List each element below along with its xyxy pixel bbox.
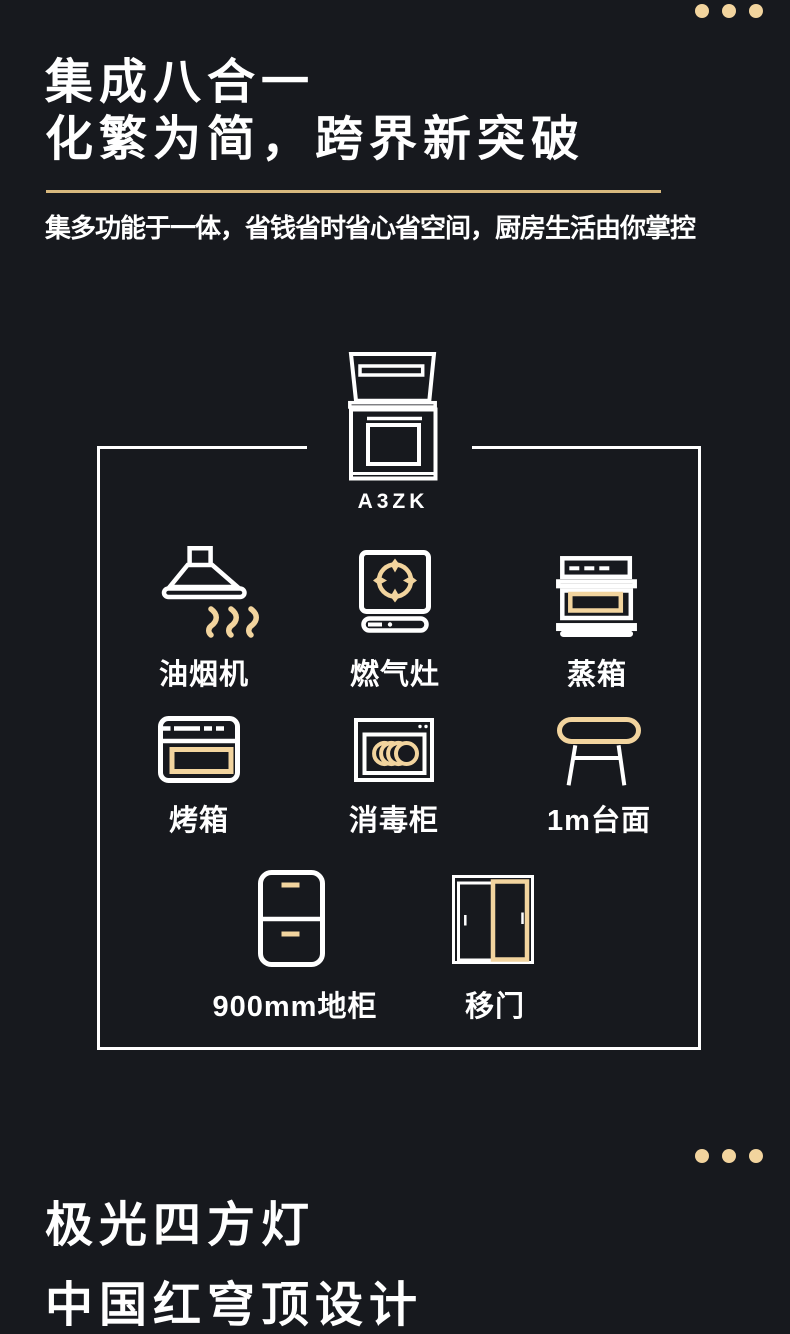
section-title-line2: 化繁为简，跨界新突破 — [45, 111, 585, 168]
item-label-gas-stove: 燃气灶 — [350, 651, 440, 693]
decoration-dots-bottom — [695, 1149, 763, 1163]
dot-icon — [749, 1149, 763, 1163]
item-label-countertop: 1m台面 — [547, 797, 651, 839]
steam-oven-icon — [556, 556, 637, 637]
item-label-steam-oven: 蒸箱 — [567, 651, 627, 693]
dot-icon — [695, 4, 709, 18]
item-label-disinfection-cabinet: 消毒柜 — [349, 797, 439, 839]
integrated-stove-icon — [349, 352, 437, 483]
item-label-base-cabinet: 900mm地柜 — [213, 983, 378, 1025]
gas-stove-icon — [359, 550, 431, 631]
section-title: 集成八合一 化繁为简，跨界新突破 — [45, 54, 585, 168]
base-cabinet-icon — [258, 870, 325, 967]
section-subtitle: 集多功能于一体，省钱省时省心省空间，厨房生活由你掌控 — [45, 208, 695, 245]
dot-icon — [722, 4, 736, 18]
model-label: A3ZK — [349, 490, 437, 514]
next-section-title-line2: 中国红穹顶设计 — [45, 1277, 423, 1334]
decoration-dots-top — [695, 4, 763, 18]
dot-icon — [749, 4, 763, 18]
section-title-line1: 集成八合一 — [45, 54, 585, 111]
sliding-door-icon — [452, 875, 534, 964]
dot-icon — [695, 1149, 709, 1163]
disinfection-cabinet-icon — [354, 718, 434, 782]
oven-icon — [158, 716, 240, 783]
countertop-icon — [557, 717, 641, 786]
item-label-range-hood: 油烟机 — [159, 651, 249, 693]
item-label-oven: 烤箱 — [169, 797, 229, 839]
next-section-title-line1: 极光四方灯 — [45, 1197, 315, 1254]
gold-divider — [46, 190, 661, 193]
dot-icon — [722, 1149, 736, 1163]
item-label-sliding-door: 移门 — [465, 983, 525, 1025]
range-hood-icon — [162, 546, 262, 638]
